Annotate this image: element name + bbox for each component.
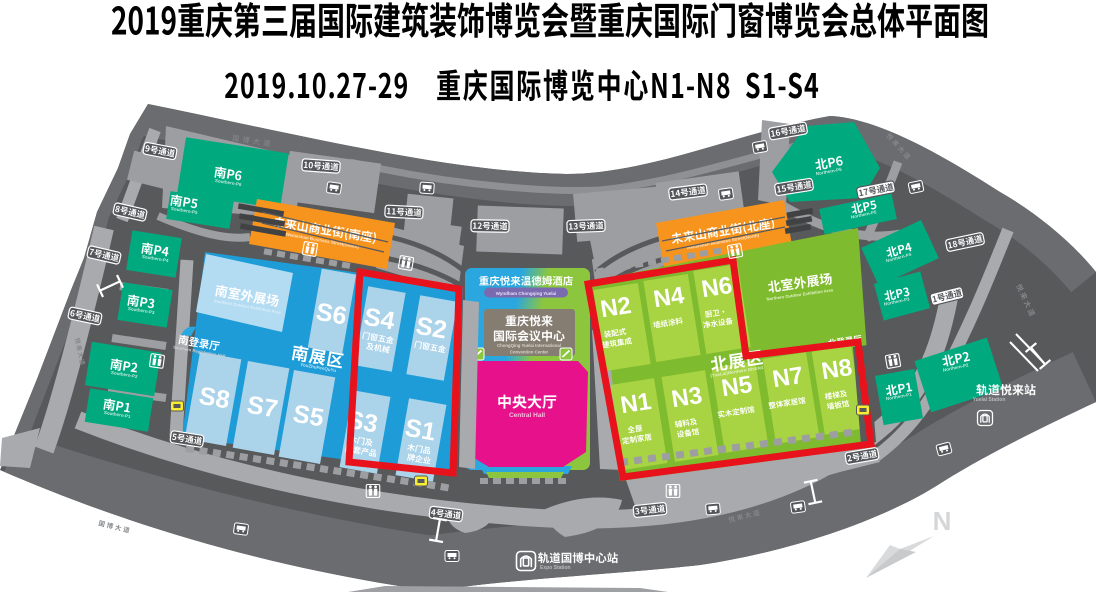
svg-text:Yuelai Station: Yuelai Station: [973, 397, 1006, 403]
svg-text:S5: S5: [291, 400, 326, 433]
svg-text:Expo Station: Expo Station: [540, 565, 571, 571]
svg-text:S6: S6: [314, 298, 349, 331]
svg-text:N6: N6: [700, 272, 735, 303]
svg-text:S2: S2: [414, 312, 449, 345]
svg-text:Central Hall: Central Hall: [509, 412, 545, 419]
svg-text:N8: N8: [820, 354, 855, 385]
svg-text:ChongQing Yuelai International: ChongQing Yuelai International: [497, 343, 561, 348]
svg-text:S8: S8: [197, 382, 232, 415]
svg-text:S1: S1: [403, 414, 438, 447]
svg-text:N1: N1: [619, 388, 654, 419]
svg-text:Convention Center: Convention Center: [510, 350, 549, 355]
svg-text:N: N: [933, 506, 952, 536]
svg-text:N2: N2: [599, 292, 634, 323]
svg-text:Wyndham Chongqing Yuelai: Wyndham Chongqing Yuelai: [496, 291, 557, 296]
svg-text:N7: N7: [771, 362, 806, 393]
svg-text:N3: N3: [670, 382, 705, 413]
svg-text:N4: N4: [652, 282, 687, 314]
svg-text:S4: S4: [362, 303, 397, 336]
svg-text:S7: S7: [245, 391, 280, 424]
